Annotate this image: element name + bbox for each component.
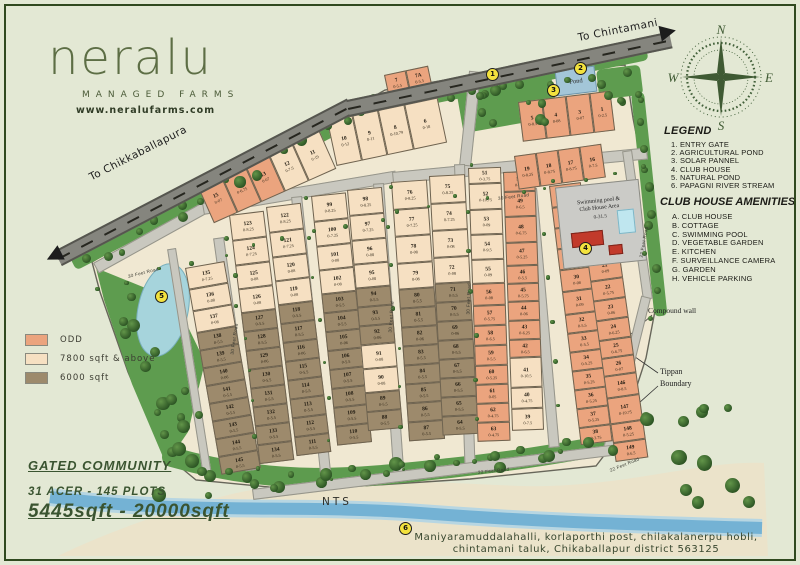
legend-item: 6. PAPAGNI RIVER STREAM <box>671 182 796 190</box>
legend: LEGEND 1. ENTRY GATE2. AGRICULTURAL POND… <box>664 125 796 190</box>
scale-note: NTS <box>322 496 352 508</box>
size-legend-row: 7800 sqft & above <box>25 349 155 368</box>
map-marker-5: 5 <box>155 290 168 303</box>
tippan-boundary-label: Tippan Boundary <box>660 366 692 390</box>
amenities-items: A. CLUB HOUSEB. COTTAGEC. SWIMMING POOLD… <box>660 213 796 283</box>
compound-wall-label: Compound wall <box>648 306 696 315</box>
size-legend-row: ODD <box>25 330 155 349</box>
brand-logo: neralu MANAGED FARMS www.neralufarms.com <box>48 30 239 116</box>
gated-community-label: GATED COMMUNITY <box>28 458 230 473</box>
tippan-line1: Tippan <box>660 366 692 378</box>
size-legend-row: 6000 sqft <box>25 368 155 387</box>
compass-n: N <box>716 22 727 37</box>
map-marker-4: 4 <box>579 242 592 255</box>
map-marker-2: 2 <box>574 62 587 75</box>
brand-website: www.neralufarms.com <box>76 105 239 116</box>
legend-items: 1. ENTRY GATE2. AGRICULTURAL POND3. SOLA… <box>664 141 796 190</box>
size-legend-label: ODD <box>60 335 83 345</box>
plot-size-legend: ODD7800 sqft & above6000 sqft <box>25 330 155 387</box>
amenity-item: H. VEHICLE PARKING <box>672 275 796 284</box>
size-legend-label: 7800 sqft & above <box>60 354 155 364</box>
map-marker-1: 1 <box>486 68 499 81</box>
tippan-line2: Boundary <box>660 378 692 390</box>
size-legend-swatch <box>25 334 48 346</box>
map-marker-3: 3 <box>547 84 560 97</box>
amenities-title: CLUB HOUSE AMENITIES <box>660 196 796 208</box>
compass-w: W <box>668 70 680 85</box>
legend-title: LEGEND <box>664 125 796 137</box>
size-range-label: 5445sqft - 20000sqft <box>28 501 230 523</box>
address-line1: Maniyaramuddalahalli, korlaporthi post, … <box>400 532 772 544</box>
acreage-plots-label: 31 ACER - 145 PLOTS <box>28 486 230 498</box>
site-plan-canvas: 1350-7.251360-081370-081380-5.51390-5.51… <box>0 0 800 565</box>
compass-star <box>682 38 760 116</box>
address: Maniyaramuddalahalli, korlaporthi post, … <box>400 532 772 555</box>
address-line2: chintamani taluk, Chikaballapur district… <box>400 544 772 556</box>
project-info: GATED COMMUNITY 31 ACER - 145 PLOTS 5445… <box>28 458 230 523</box>
compass-e: E <box>764 70 773 85</box>
brand-name: neralu <box>48 30 239 86</box>
brand-subtitle: MANAGED FARMS <box>82 90 239 100</box>
size-legend-label: 6000 sqft <box>60 373 109 383</box>
size-legend-swatch <box>25 353 48 365</box>
compass-rose: N E S W <box>666 22 776 132</box>
amenities-legend: CLUB HOUSE AMENITIES A. CLUB HOUSEB. COT… <box>660 196 796 283</box>
size-legend-swatch <box>25 372 48 384</box>
